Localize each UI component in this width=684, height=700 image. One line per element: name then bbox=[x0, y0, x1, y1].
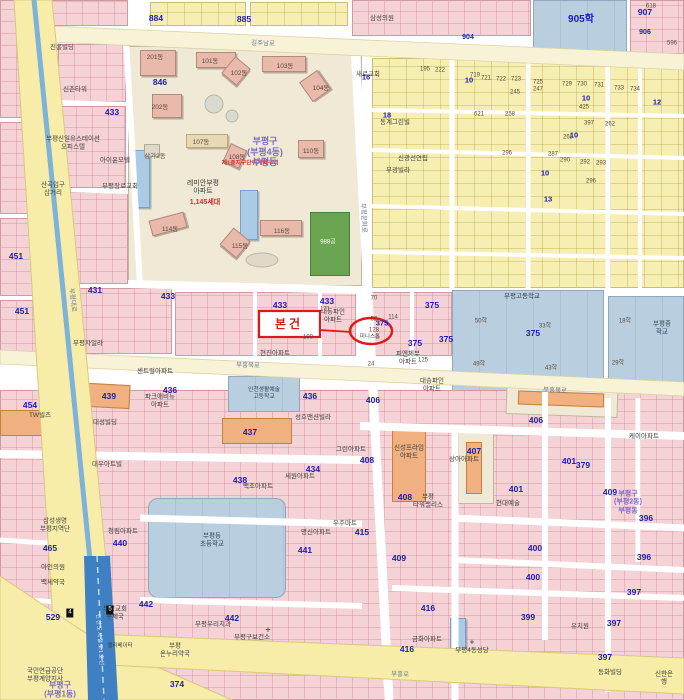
map-block bbox=[250, 2, 348, 26]
map-canvas[interactable]: 884885905학907906904618596846433451451431… bbox=[0, 0, 684, 700]
map-block bbox=[518, 391, 604, 408]
map-shape bbox=[58, 102, 126, 104]
map-block bbox=[144, 144, 160, 157]
school-905-block bbox=[533, 0, 627, 58]
map-block bbox=[298, 140, 324, 158]
map-block bbox=[140, 50, 176, 76]
map-label: 125 bbox=[418, 357, 428, 364]
map-block bbox=[0, 0, 50, 118]
map-block bbox=[150, 2, 246, 26]
map-block bbox=[222, 418, 292, 444]
elementary-school-block bbox=[148, 498, 286, 598]
map-block bbox=[240, 190, 258, 240]
south-parcel-zone bbox=[0, 390, 684, 700]
map-block bbox=[260, 220, 302, 236]
map-block bbox=[50, 0, 128, 26]
map-block bbox=[392, 430, 426, 502]
middleschool-block bbox=[608, 296, 684, 398]
map-label: 24 bbox=[368, 361, 375, 368]
map-block bbox=[87, 383, 130, 409]
map-block bbox=[60, 106, 126, 188]
map-block bbox=[186, 134, 228, 148]
map-block bbox=[450, 618, 466, 658]
map-block bbox=[70, 288, 172, 354]
map-block bbox=[0, 122, 48, 214]
map-block bbox=[64, 192, 128, 284]
map-block bbox=[262, 56, 306, 72]
map-label: 센트럴아파트 bbox=[137, 368, 173, 376]
yellow-parcel-zone bbox=[372, 58, 684, 288]
road-label-buheungbukro: 부흥북로 bbox=[236, 362, 260, 370]
highschool-block bbox=[452, 290, 604, 396]
map-block bbox=[58, 44, 126, 102]
map-block bbox=[368, 292, 452, 356]
map-label: 16 bbox=[362, 74, 370, 83]
map-block bbox=[352, 0, 531, 36]
map-block bbox=[0, 300, 44, 356]
map-block bbox=[630, 0, 684, 54]
subject-parcel-row bbox=[175, 292, 356, 356]
park bbox=[310, 212, 350, 276]
map-block bbox=[466, 442, 482, 494]
map-block bbox=[0, 410, 54, 436]
map-block bbox=[0, 218, 46, 296]
map-block bbox=[134, 150, 150, 208]
arts-highschool-block bbox=[228, 376, 300, 412]
map-block bbox=[152, 94, 182, 118]
